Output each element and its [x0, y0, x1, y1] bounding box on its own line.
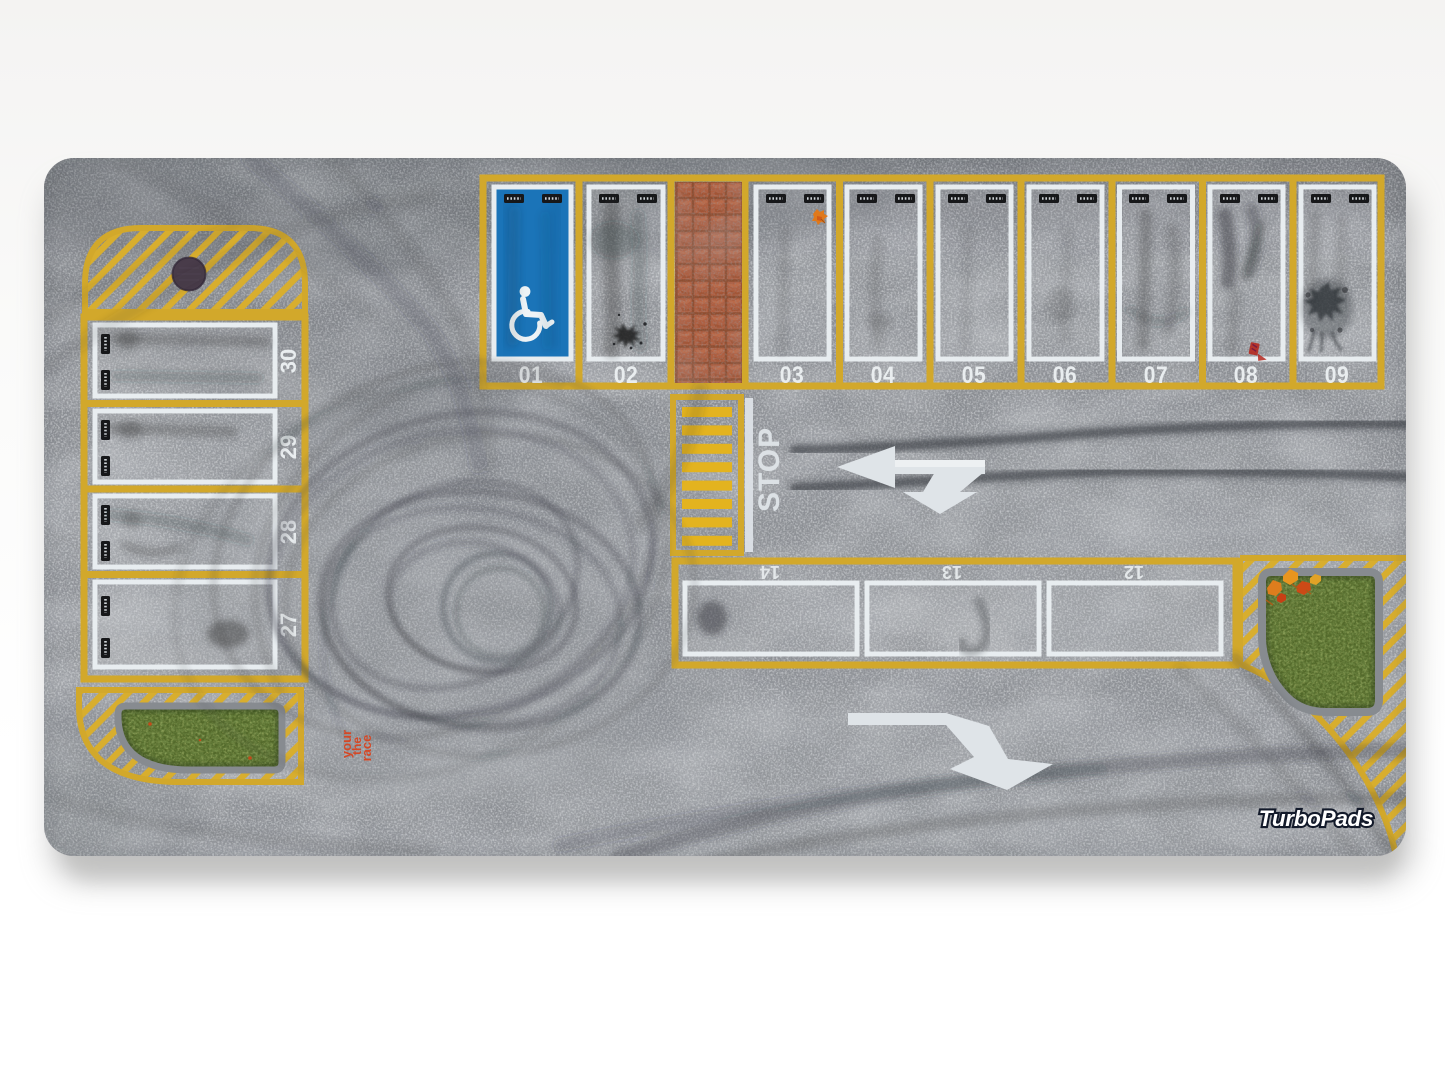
svg-text:06: 06 — [1053, 362, 1077, 389]
svg-text:14: 14 — [760, 562, 780, 582]
svg-text:08: 08 — [1234, 362, 1258, 389]
svg-text:05: 05 — [962, 362, 986, 389]
svg-text:09: 09 — [1325, 362, 1349, 389]
svg-text:03: 03 — [780, 362, 804, 389]
svg-text:02: 02 — [614, 362, 638, 389]
svg-text:13: 13 — [942, 562, 962, 582]
svg-text:30: 30 — [276, 349, 301, 373]
svg-text:04: 04 — [871, 362, 895, 389]
svg-text:race: race — [359, 735, 374, 762]
svg-text:12: 12 — [1124, 562, 1144, 582]
svg-text:STOP: STOP — [753, 427, 786, 512]
svg-text:07: 07 — [1144, 362, 1168, 389]
svg-text:TurboPads: TurboPads — [1259, 806, 1373, 831]
